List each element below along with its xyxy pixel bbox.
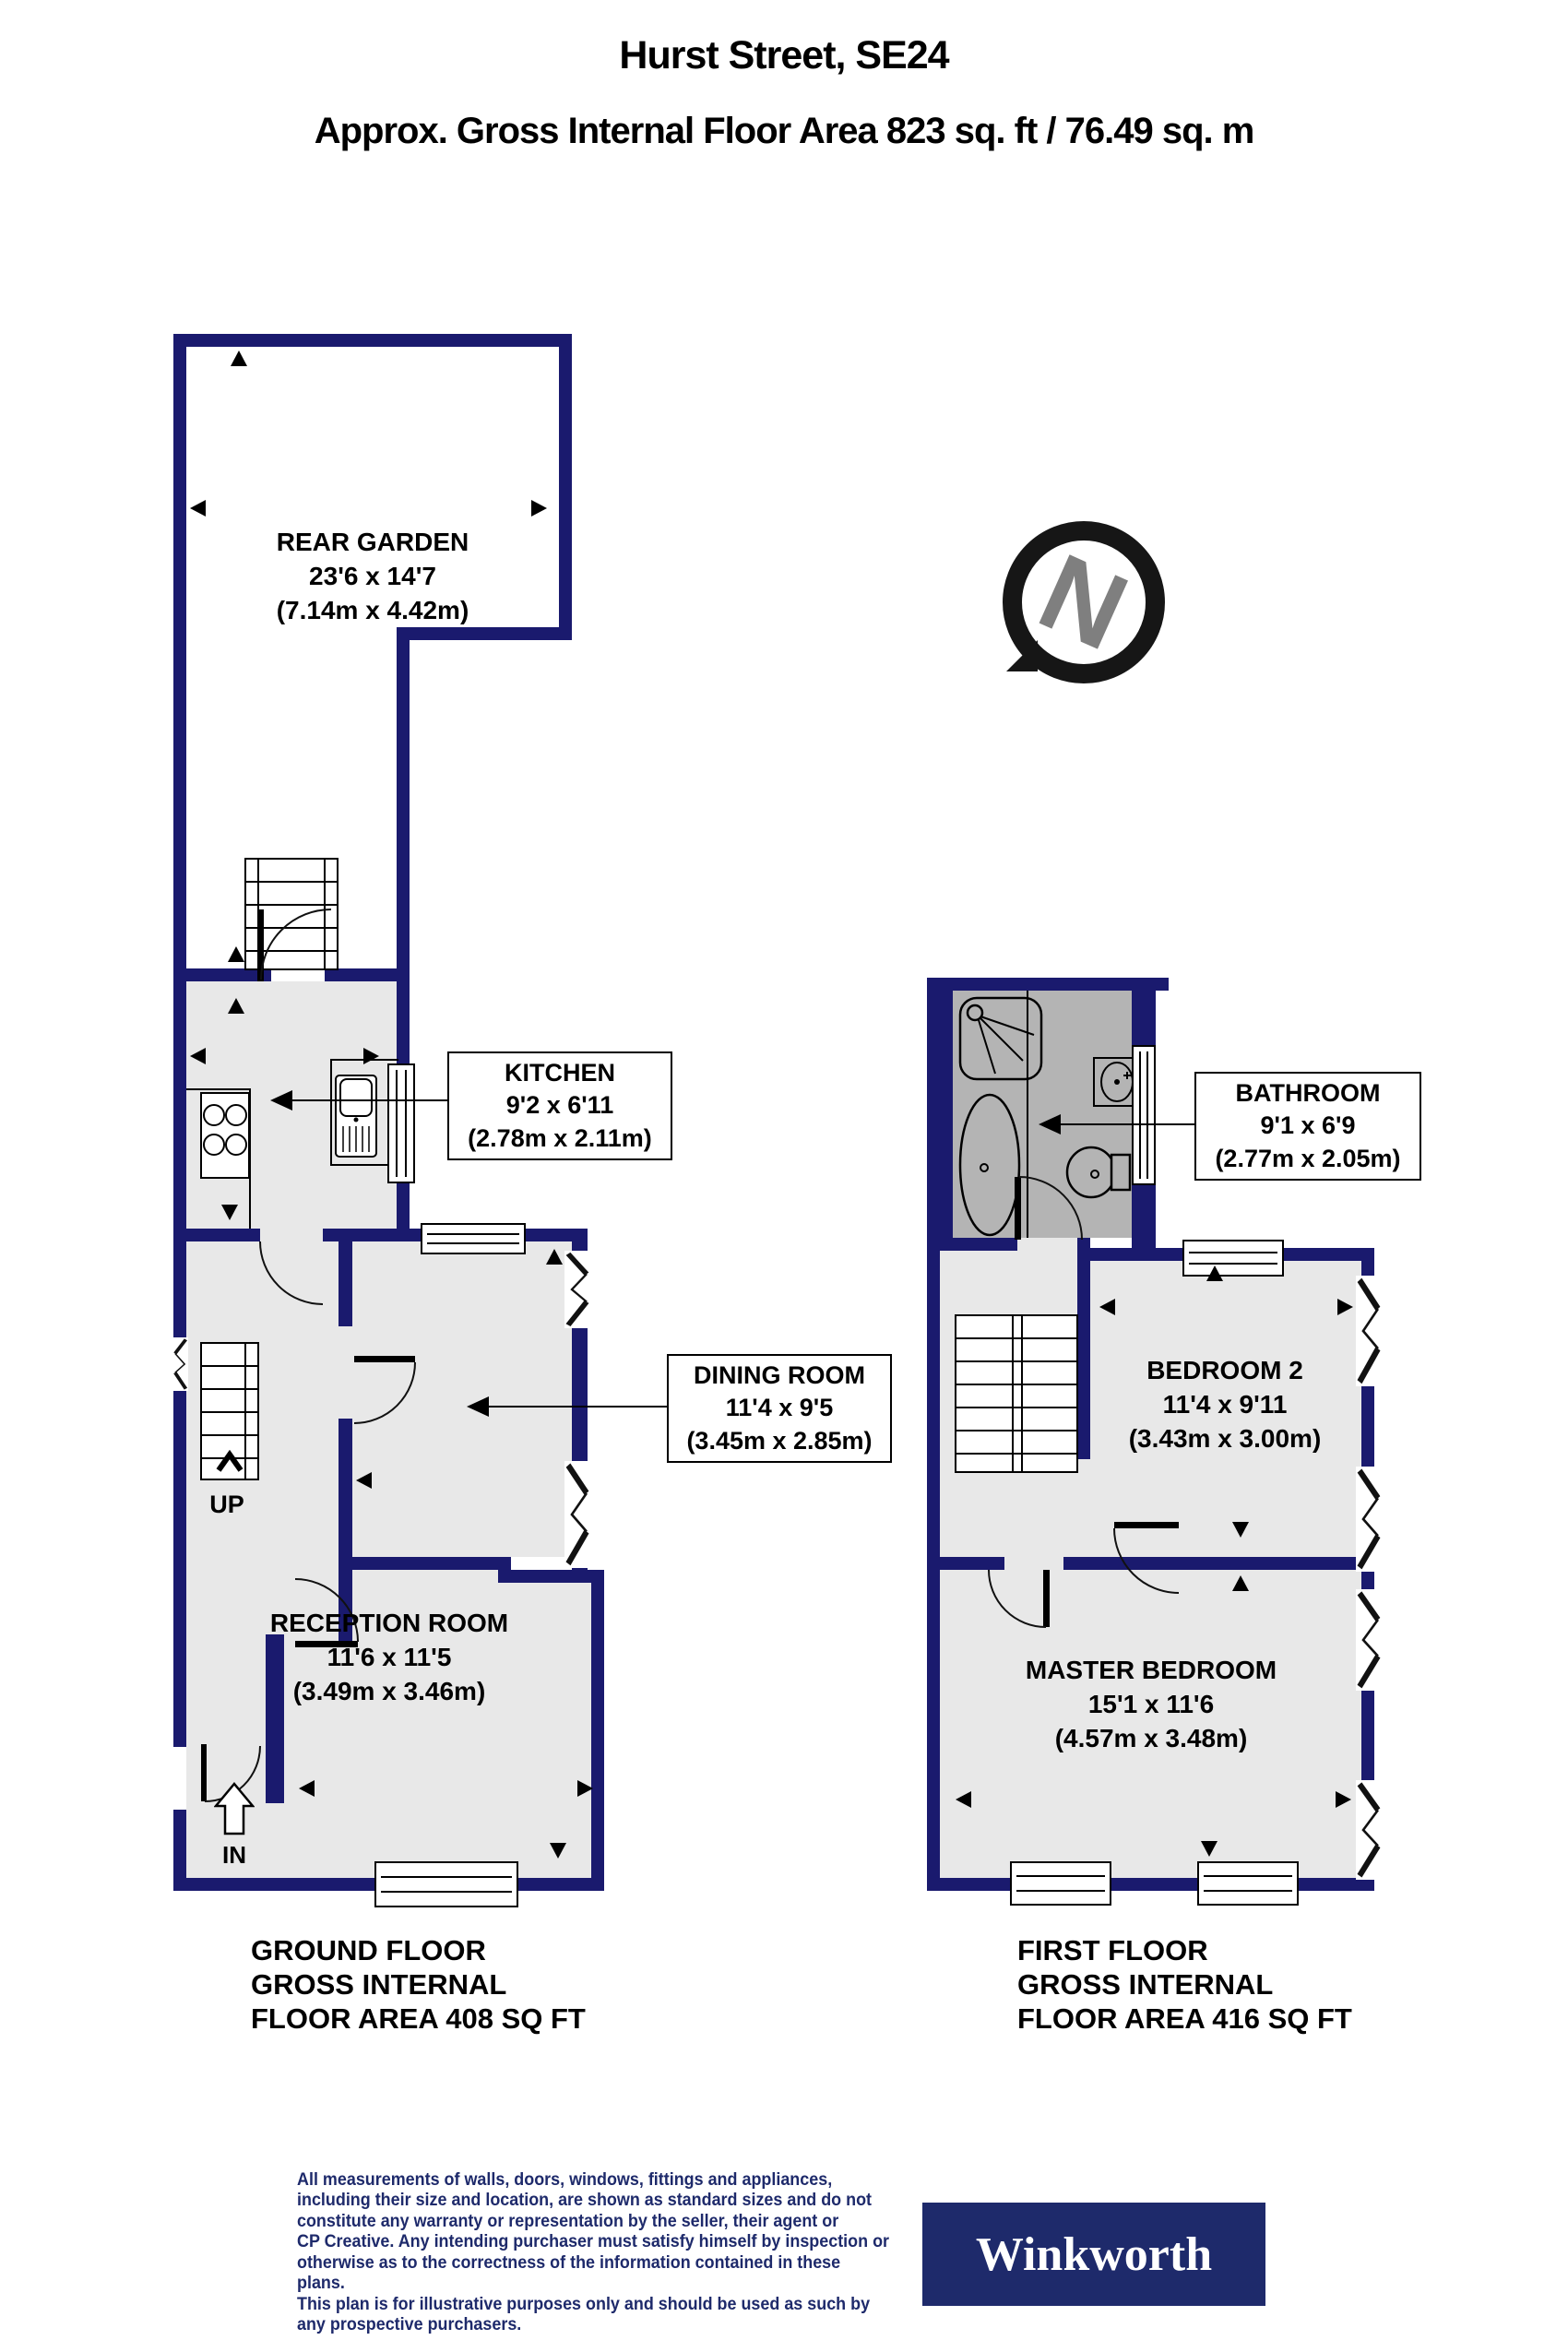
dimension-arrow [1206, 1265, 1223, 1281]
bedroom2-door-gap [1077, 1459, 1090, 1557]
door-arc [1019, 1177, 1082, 1240]
dining-door-gap [339, 1326, 352, 1419]
dimension-arrow [956, 1791, 971, 1808]
dimension-arrow [299, 1780, 315, 1797]
leader-arrow-icon [270, 1090, 292, 1111]
wall [498, 1570, 604, 1583]
dimension-arrow [1336, 1791, 1351, 1808]
floorplan-page: Hurst Street, SE24 Approx. Gross Interna… [0, 0, 1568, 2352]
wall [591, 1570, 604, 1891]
door-leaf [1114, 1522, 1179, 1528]
dimension-arrow [1201, 1841, 1218, 1857]
wall [559, 334, 572, 640]
bathtub-icon [956, 1090, 1023, 1240]
door-arc [354, 1362, 415, 1423]
kitchen-door-gap [260, 1229, 323, 1241]
dimension-arrow [1232, 1522, 1249, 1538]
wall [927, 978, 953, 1251]
winkworth-logo-text: Winkworth [976, 2227, 1212, 2282]
dimension-arrow [1337, 1299, 1353, 1315]
dimension-arrow [577, 1780, 593, 1797]
dimension-arrow [546, 1249, 563, 1265]
leader-line [281, 1099, 447, 1101]
bathroom-door-gap [1017, 1238, 1077, 1251]
dimension-arrow [1099, 1299, 1115, 1315]
wall [352, 1557, 511, 1570]
wall [927, 978, 1169, 991]
window [387, 1063, 415, 1183]
entrance-arrow-icon [214, 1782, 255, 1835]
window [1010, 1861, 1111, 1906]
staircase-landing [955, 1314, 1078, 1473]
dimension-arrow [363, 1048, 379, 1064]
bay-window [374, 1861, 518, 1907]
shower-icon [956, 994, 1045, 1083]
garden-label: REAR GARDEN 23'6 x 14'7 (7.14m x 4.42m) [188, 526, 557, 628]
sash-window [564, 1251, 590, 1328]
sash-window [564, 1461, 590, 1568]
wall [186, 1229, 260, 1241]
window [1182, 1240, 1284, 1277]
leader-line [478, 1406, 667, 1408]
kitchen-label-box: KITCHEN 9'2 x 6'11 (2.78m x 2.11m) [447, 1051, 672, 1160]
door-leaf [354, 1356, 415, 1362]
dimension-arrow [231, 350, 247, 366]
door-arc [989, 1570, 1046, 1627]
wall [1063, 1557, 1374, 1570]
window [1197, 1861, 1299, 1906]
wall [927, 1251, 940, 1891]
reception-label: RECEPTION ROOM 11'6 x 11'5 (3.49m x 3.46… [205, 1607, 574, 1709]
door-arc [260, 1241, 323, 1304]
window [421, 1223, 526, 1254]
dimension-arrow [228, 946, 244, 962]
bedroom2-label: BEDROOM 2 11'4 x 9'11 (3.43m x 3.00m) [1087, 1354, 1363, 1456]
sash-window [1356, 1780, 1382, 1880]
wall [325, 968, 410, 981]
wall [397, 640, 410, 981]
wall [940, 1238, 1017, 1251]
wall [397, 627, 572, 640]
wall [323, 1229, 410, 1241]
window [1132, 1045, 1156, 1185]
dimension-arrow [1232, 1575, 1249, 1591]
stairs-up-label: UP [190, 1489, 264, 1522]
dimension-arrow [190, 500, 206, 517]
disclaimer-text: All measurements of walls, doors, window… [297, 2169, 891, 2334]
winkworth-logo: Winkworth [922, 2203, 1265, 2306]
north-letter: N [1026, 537, 1142, 668]
counter-line [186, 1088, 251, 1090]
ground-floor-caption: GROUND FLOOR GROSS INTERNAL FLOOR AREA 4… [251, 1933, 675, 2037]
page-subtitle: Approx. Gross Internal Floor Area 823 sq… [0, 111, 1568, 152]
dining-label-box: DINING ROOM 11'4 x 9'5 (3.45m x 2.85m) [667, 1354, 892, 1463]
dimension-arrow [221, 1205, 238, 1220]
sash-window [1356, 1467, 1382, 1572]
compass-pointer-icon [1004, 638, 1039, 673]
dimension-arrow [190, 1048, 206, 1064]
page-title: Hurst Street, SE24 [0, 33, 1568, 78]
wall [173, 334, 186, 1747]
dimension-arrow [356, 1472, 372, 1489]
sash-window [1356, 1589, 1382, 1691]
wall [940, 1557, 1004, 1570]
dimension-arrow [531, 500, 547, 517]
leader-line [1050, 1123, 1194, 1125]
leader-arrow-icon [467, 1396, 489, 1417]
leader-arrow-icon [1039, 1114, 1061, 1134]
wall [173, 1810, 186, 1891]
up-arrow-icon [215, 1450, 244, 1474]
master-bedroom-label: MASTER BEDROOM 15'1 x 11'6 (4.57m x 3.48… [967, 1654, 1336, 1756]
wall [927, 1878, 1374, 1891]
dimension-arrow [228, 998, 244, 1014]
stove-icon [199, 1091, 251, 1180]
bathroom-label-box: BATHROOM 9'1 x 6'9 (2.77m x 2.05m) [1194, 1072, 1421, 1181]
first-floor-caption: FIRST FLOOR GROSS INTERNAL FLOOR AREA 41… [1017, 1933, 1442, 2037]
master-door-gap [1004, 1557, 1063, 1570]
wall [173, 334, 572, 347]
wall [339, 1241, 352, 1326]
door-arc [1114, 1528, 1179, 1593]
entrance-label: IN [207, 1839, 262, 1871]
counter-line [330, 1059, 332, 1166]
dimension-arrow [550, 1843, 566, 1859]
door-arc [261, 909, 331, 980]
sash-window [172, 1337, 188, 1391]
kitchen-sink-icon [335, 1075, 377, 1158]
